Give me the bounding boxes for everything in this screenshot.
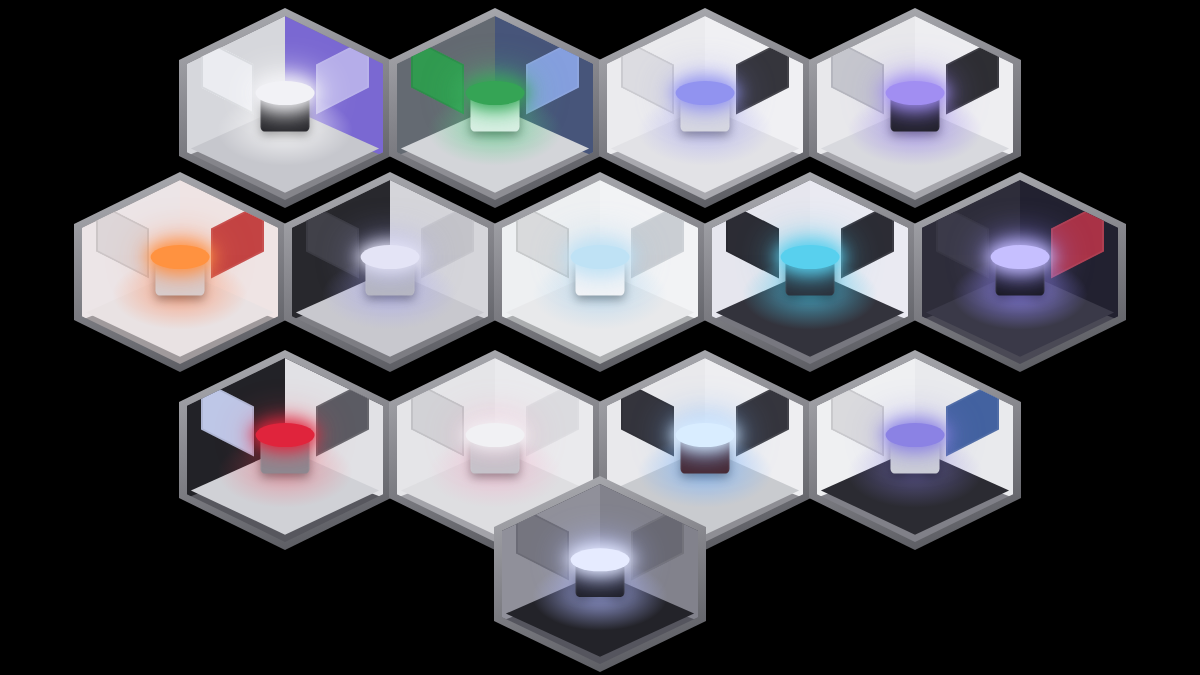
robot-arm-glow <box>361 245 420 269</box>
room-interior <box>712 180 908 364</box>
holo-ring-top <box>256 81 315 105</box>
holo-circuit-projection <box>781 245 840 269</box>
laser-beam <box>151 245 210 269</box>
lightning-arc <box>991 245 1050 269</box>
room-interior <box>502 484 698 664</box>
room-interior <box>502 180 698 364</box>
room-interior <box>292 180 488 364</box>
engine-red-lens <box>256 423 315 447</box>
room-hex-specimen-lab[interactable] <box>389 8 601 208</box>
room-interior <box>922 180 1118 364</box>
plasma-orb <box>676 423 735 447</box>
specimen-pod-top <box>466 81 525 105</box>
room-hex-accelerator-room[interactable] <box>809 350 1021 550</box>
glass-dome-glow-ring <box>676 81 735 105</box>
room-hex-clean-lab[interactable] <box>599 8 811 208</box>
room-hex-engine-room[interactable] <box>179 350 391 550</box>
room-hex-laser-lab[interactable] <box>74 172 286 372</box>
coil-purple-pads <box>886 423 945 447</box>
room-interior <box>187 16 383 200</box>
room-interior <box>82 180 278 364</box>
room-hex-robotics-bay[interactable] <box>284 172 496 372</box>
room-hex-server-room[interactable] <box>704 172 916 372</box>
holo-globe <box>886 81 945 105</box>
med-bed-pillow <box>571 245 630 269</box>
hex-facility-map <box>0 0 1200 675</box>
room-hex-satellite-control[interactable] <box>179 8 391 208</box>
room-interior <box>397 16 593 200</box>
room-interior <box>817 16 1013 200</box>
room-interior <box>817 358 1013 542</box>
room-hex-tesla-chamber[interactable] <box>914 172 1126 372</box>
room-interior <box>607 16 803 200</box>
suspended-ring <box>466 423 525 447</box>
room-interior <box>187 358 383 542</box>
room-hex-med-bay[interactable] <box>494 172 706 372</box>
room-hex-briefing-room[interactable] <box>809 8 1021 208</box>
